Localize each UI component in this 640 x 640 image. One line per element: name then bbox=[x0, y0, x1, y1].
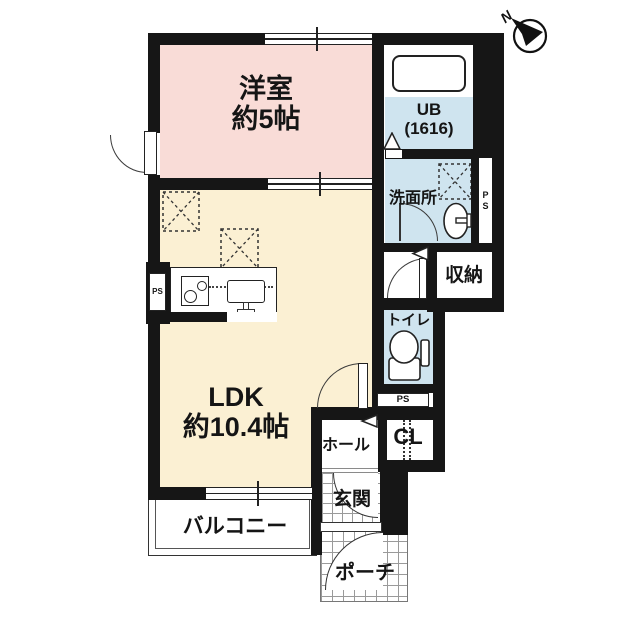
ldk-label: LDK 約10.4帖 bbox=[140, 382, 332, 442]
wall-toilet-right bbox=[433, 310, 445, 408]
western-room-label: 洋室 約5帖 bbox=[160, 74, 372, 134]
entrance-door-band bbox=[320, 522, 382, 532]
washbasin-icon bbox=[443, 202, 475, 240]
door-swing-marker-icon bbox=[411, 246, 429, 261]
bathtub-icon bbox=[392, 55, 466, 92]
window-yoshitsu-top bbox=[265, 33, 372, 45]
window-mullion bbox=[257, 481, 259, 506]
room-name: LDK bbox=[140, 382, 332, 412]
window-mullion bbox=[316, 27, 318, 51]
toilet-label: トイレ bbox=[384, 313, 433, 329]
wall-toilet-bottom bbox=[373, 384, 433, 393]
storage-label: 収納 bbox=[435, 265, 493, 286]
unit-bath-label: UB (1616) bbox=[385, 100, 473, 138]
door-arc-yoshitsu bbox=[110, 135, 147, 173]
ps-box-right: PS bbox=[479, 158, 492, 243]
door-leaf bbox=[419, 258, 427, 299]
room-size: 約10.4帖 bbox=[140, 412, 332, 442]
north-label: N bbox=[497, 7, 516, 26]
stove-burner-icon bbox=[197, 281, 207, 291]
toilet-icon bbox=[387, 330, 431, 384]
window-mullion bbox=[319, 172, 321, 196]
appliance-space-icon bbox=[162, 191, 200, 232]
kitchen-sink-icon bbox=[227, 280, 265, 303]
wall-toilet-top bbox=[372, 298, 433, 310]
stove-burner-icon bbox=[184, 290, 197, 303]
ps-label: PS bbox=[152, 288, 163, 297]
washroom-label: 洗面所 bbox=[383, 190, 443, 208]
entrance-step-line bbox=[322, 468, 378, 469]
balcony-label: バルコニー bbox=[160, 515, 310, 539]
room-name: 洋室 bbox=[160, 74, 372, 104]
wall-right-upper bbox=[492, 33, 504, 312]
room-size: 約5帖 bbox=[160, 104, 372, 134]
door-leaf bbox=[399, 203, 401, 241]
door-leaf bbox=[144, 131, 157, 175]
entrance-label: 玄関 bbox=[325, 489, 379, 510]
ps-box-toilet: PS bbox=[377, 393, 429, 407]
porch-label: ポーチ bbox=[328, 562, 402, 584]
wall-ub-right bbox=[473, 45, 492, 158]
ps-label: PS bbox=[397, 395, 410, 406]
appliance-space-icon bbox=[220, 228, 259, 269]
room-name: UB bbox=[385, 100, 473, 119]
room-size: (1616) bbox=[385, 119, 473, 138]
ps-label: PS bbox=[480, 190, 490, 212]
wall-yoshitsu-ldk bbox=[148, 178, 268, 190]
ub-door-gap bbox=[386, 150, 402, 158]
sliding-door-balcony bbox=[206, 487, 312, 500]
wall-entrance-right bbox=[380, 470, 408, 535]
closet-label: CL bbox=[387, 425, 429, 450]
north-compass-icon: N bbox=[494, 4, 558, 62]
door-leaf bbox=[358, 363, 368, 409]
floor-plan: PS PS PS bbox=[0, 0, 640, 640]
wall-under-kitchen bbox=[148, 312, 227, 322]
counter-lower-strip bbox=[227, 312, 277, 322]
wall-washroom-bottom bbox=[372, 243, 504, 252]
hall-label: ホール bbox=[318, 437, 374, 455]
washer-space-icon bbox=[438, 163, 472, 200]
wall-center-vertical bbox=[372, 33, 384, 408]
ps-box-kitchen: PS bbox=[149, 273, 166, 311]
door-swing-marker-icon bbox=[360, 414, 378, 428]
